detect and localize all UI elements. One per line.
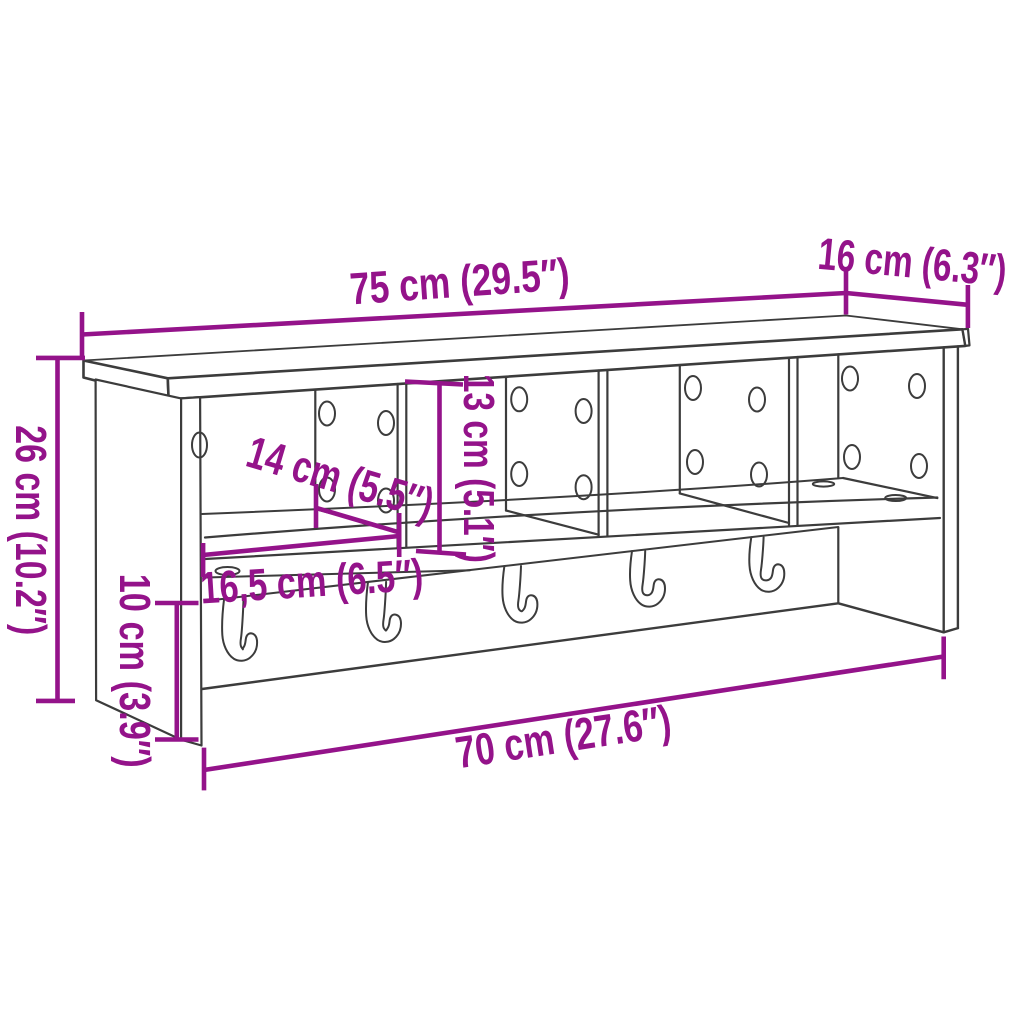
svg-text:10 cm (3.9″): 10 cm (3.9″) (110, 574, 159, 768)
svg-text:26 cm (10.2″): 26 cm (10.2″) (6, 425, 55, 635)
svg-text:13 cm (5.1″): 13 cm (5.1″) (454, 374, 503, 563)
